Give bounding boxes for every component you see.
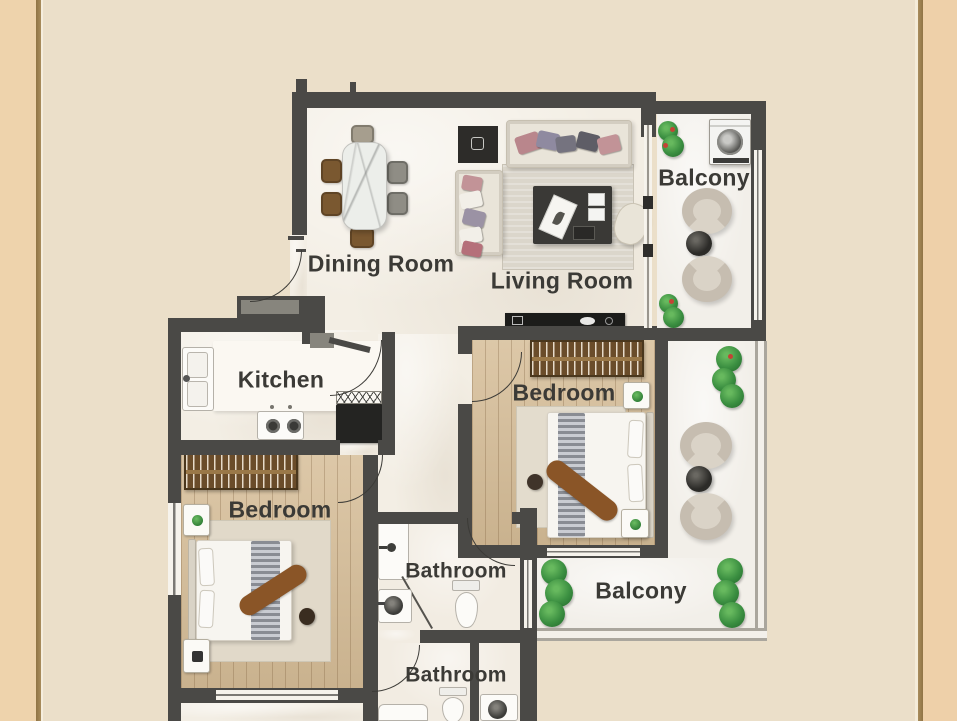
dining-table: [342, 142, 387, 230]
wall-balcony-upper-top: [654, 101, 766, 114]
wall-dining-left: [292, 92, 307, 235]
label-living-room: Living Room: [491, 270, 634, 293]
left-border-panel: [0, 0, 36, 721]
washing-machine-icon: [709, 119, 751, 165]
left-highlight-line: [41, 0, 43, 721]
sink-basin: [187, 352, 208, 378]
armchair: [680, 422, 732, 469]
label-balcony-lower: Balcony: [595, 580, 687, 603]
wall-kitchen-top: [168, 318, 325, 332]
machine-base: [713, 158, 749, 163]
media-cabinet: [458, 126, 498, 163]
magazine-graphic: [552, 210, 565, 226]
sink-basin: [187, 381, 208, 407]
armchair: [680, 493, 732, 540]
shower-head-icon: [387, 543, 396, 552]
label-bedroom-upper: Bedroom: [512, 382, 615, 405]
shower-arm: [379, 546, 387, 549]
bed-pillow: [627, 464, 644, 503]
dining-chair: [387, 192, 408, 215]
wall-kitchen-bottom: [168, 440, 340, 455]
cutoff-floor-strip: [181, 703, 365, 721]
right-border-panel: [923, 0, 957, 721]
sofa-pillow: [555, 135, 577, 154]
label-dining-room: Dining Room: [308, 253, 454, 276]
bed-pillow: [627, 420, 644, 459]
kitchen-sink-unit: [182, 347, 214, 411]
toilet-tank: [439, 687, 467, 696]
bed-pillow: [198, 548, 215, 587]
round-table: [686, 466, 712, 492]
cabinet-icon: [471, 137, 484, 150]
plant: [658, 121, 684, 163]
wall-bathroom-upper-top: [378, 512, 466, 524]
console-decor-icon: [580, 317, 595, 325]
nightstand: [621, 509, 649, 538]
bathroom-lower-door-floor: [372, 630, 420, 643]
plant: [659, 294, 684, 330]
window: [547, 548, 640, 556]
plant-icon: [630, 519, 641, 530]
burner-icon: [266, 419, 280, 433]
wall-stub: [350, 82, 356, 93]
entry-door-frame: [241, 300, 299, 314]
machine-drum-icon: [717, 129, 743, 155]
dining-chair: [321, 192, 342, 216]
wall-bathroom-divider: [420, 630, 520, 643]
burner-icon: [287, 419, 301, 433]
tray: [573, 226, 595, 240]
window: [754, 150, 762, 320]
dining-chair: [321, 159, 342, 183]
door-track-block: [643, 244, 653, 257]
plant-icon: [632, 391, 643, 402]
label-kitchen: Kitchen: [238, 369, 324, 392]
plant: [539, 559, 574, 627]
sofa-pillow: [461, 174, 483, 192]
bedroom-upper-wardrobe: [530, 340, 644, 377]
plant: [713, 558, 746, 628]
dining-chair: [387, 161, 408, 184]
coffee-table: [533, 186, 612, 244]
sliding-glass-door: [646, 125, 650, 328]
book: [588, 193, 605, 206]
dining-chair: [350, 227, 374, 248]
wall-living-bedroom: [458, 326, 657, 340]
knob-icon: [288, 405, 292, 409]
window: [216, 690, 338, 700]
console-ring-icon: [605, 317, 613, 325]
wall-top: [293, 92, 655, 108]
window: [168, 503, 181, 595]
label-bathroom-lower: Bathroom: [405, 665, 507, 686]
bed-pillow: [198, 590, 215, 629]
console-speaker-icon: [512, 316, 523, 325]
armchair: [682, 256, 732, 302]
label-bedroom-lower: Bedroom: [228, 499, 331, 522]
magazine: [538, 194, 577, 239]
faucet-icon: [378, 602, 385, 605]
armchair: [682, 188, 732, 234]
machine-panel-line: [710, 125, 750, 127]
refrigerator: [336, 404, 383, 443]
wall-kitchen-right: [382, 332, 395, 455]
plant-icon: [192, 515, 203, 526]
wall-kitchen-bottom: [378, 440, 395, 455]
lamp-icon: [192, 651, 203, 662]
nightstand: [183, 504, 210, 536]
plant: [712, 346, 746, 408]
wall-balcony-upper-bottom: [657, 328, 766, 341]
wall-bathroom-divider: [363, 630, 372, 643]
nightstand: [183, 639, 210, 673]
knob-icon: [270, 405, 274, 409]
book: [588, 208, 605, 221]
balcony-railing-bottom: [537, 628, 767, 641]
label-balcony-upper: Balcony: [658, 167, 750, 190]
balcony-railing-right: [755, 341, 767, 640]
window: [524, 560, 532, 628]
wall-bedroom-upper-left: [458, 340, 472, 354]
washbasin-bowl: [488, 700, 507, 719]
faucet-icon: [183, 375, 190, 382]
nightstand: [623, 382, 650, 409]
bed-headboard: [188, 539, 196, 641]
door-track-block: [643, 196, 653, 209]
label-bathroom-upper: Bathroom: [405, 561, 507, 582]
bathtub: [378, 704, 428, 721]
toilet-bowl: [442, 697, 464, 721]
pouf: [527, 474, 543, 490]
round-table: [686, 231, 712, 256]
door-leaf: [288, 236, 304, 240]
floor-plan-canvas: Dining Room Living Room Balcony Kitchen …: [0, 0, 957, 721]
wall-stub: [296, 79, 307, 93]
wall-bedroom-upper-right: [655, 338, 668, 558]
pouf: [299, 608, 315, 625]
bedroom-lower-wardrobe: [184, 453, 298, 490]
cooktop: [257, 411, 304, 440]
washbasin-bowl: [384, 596, 403, 615]
